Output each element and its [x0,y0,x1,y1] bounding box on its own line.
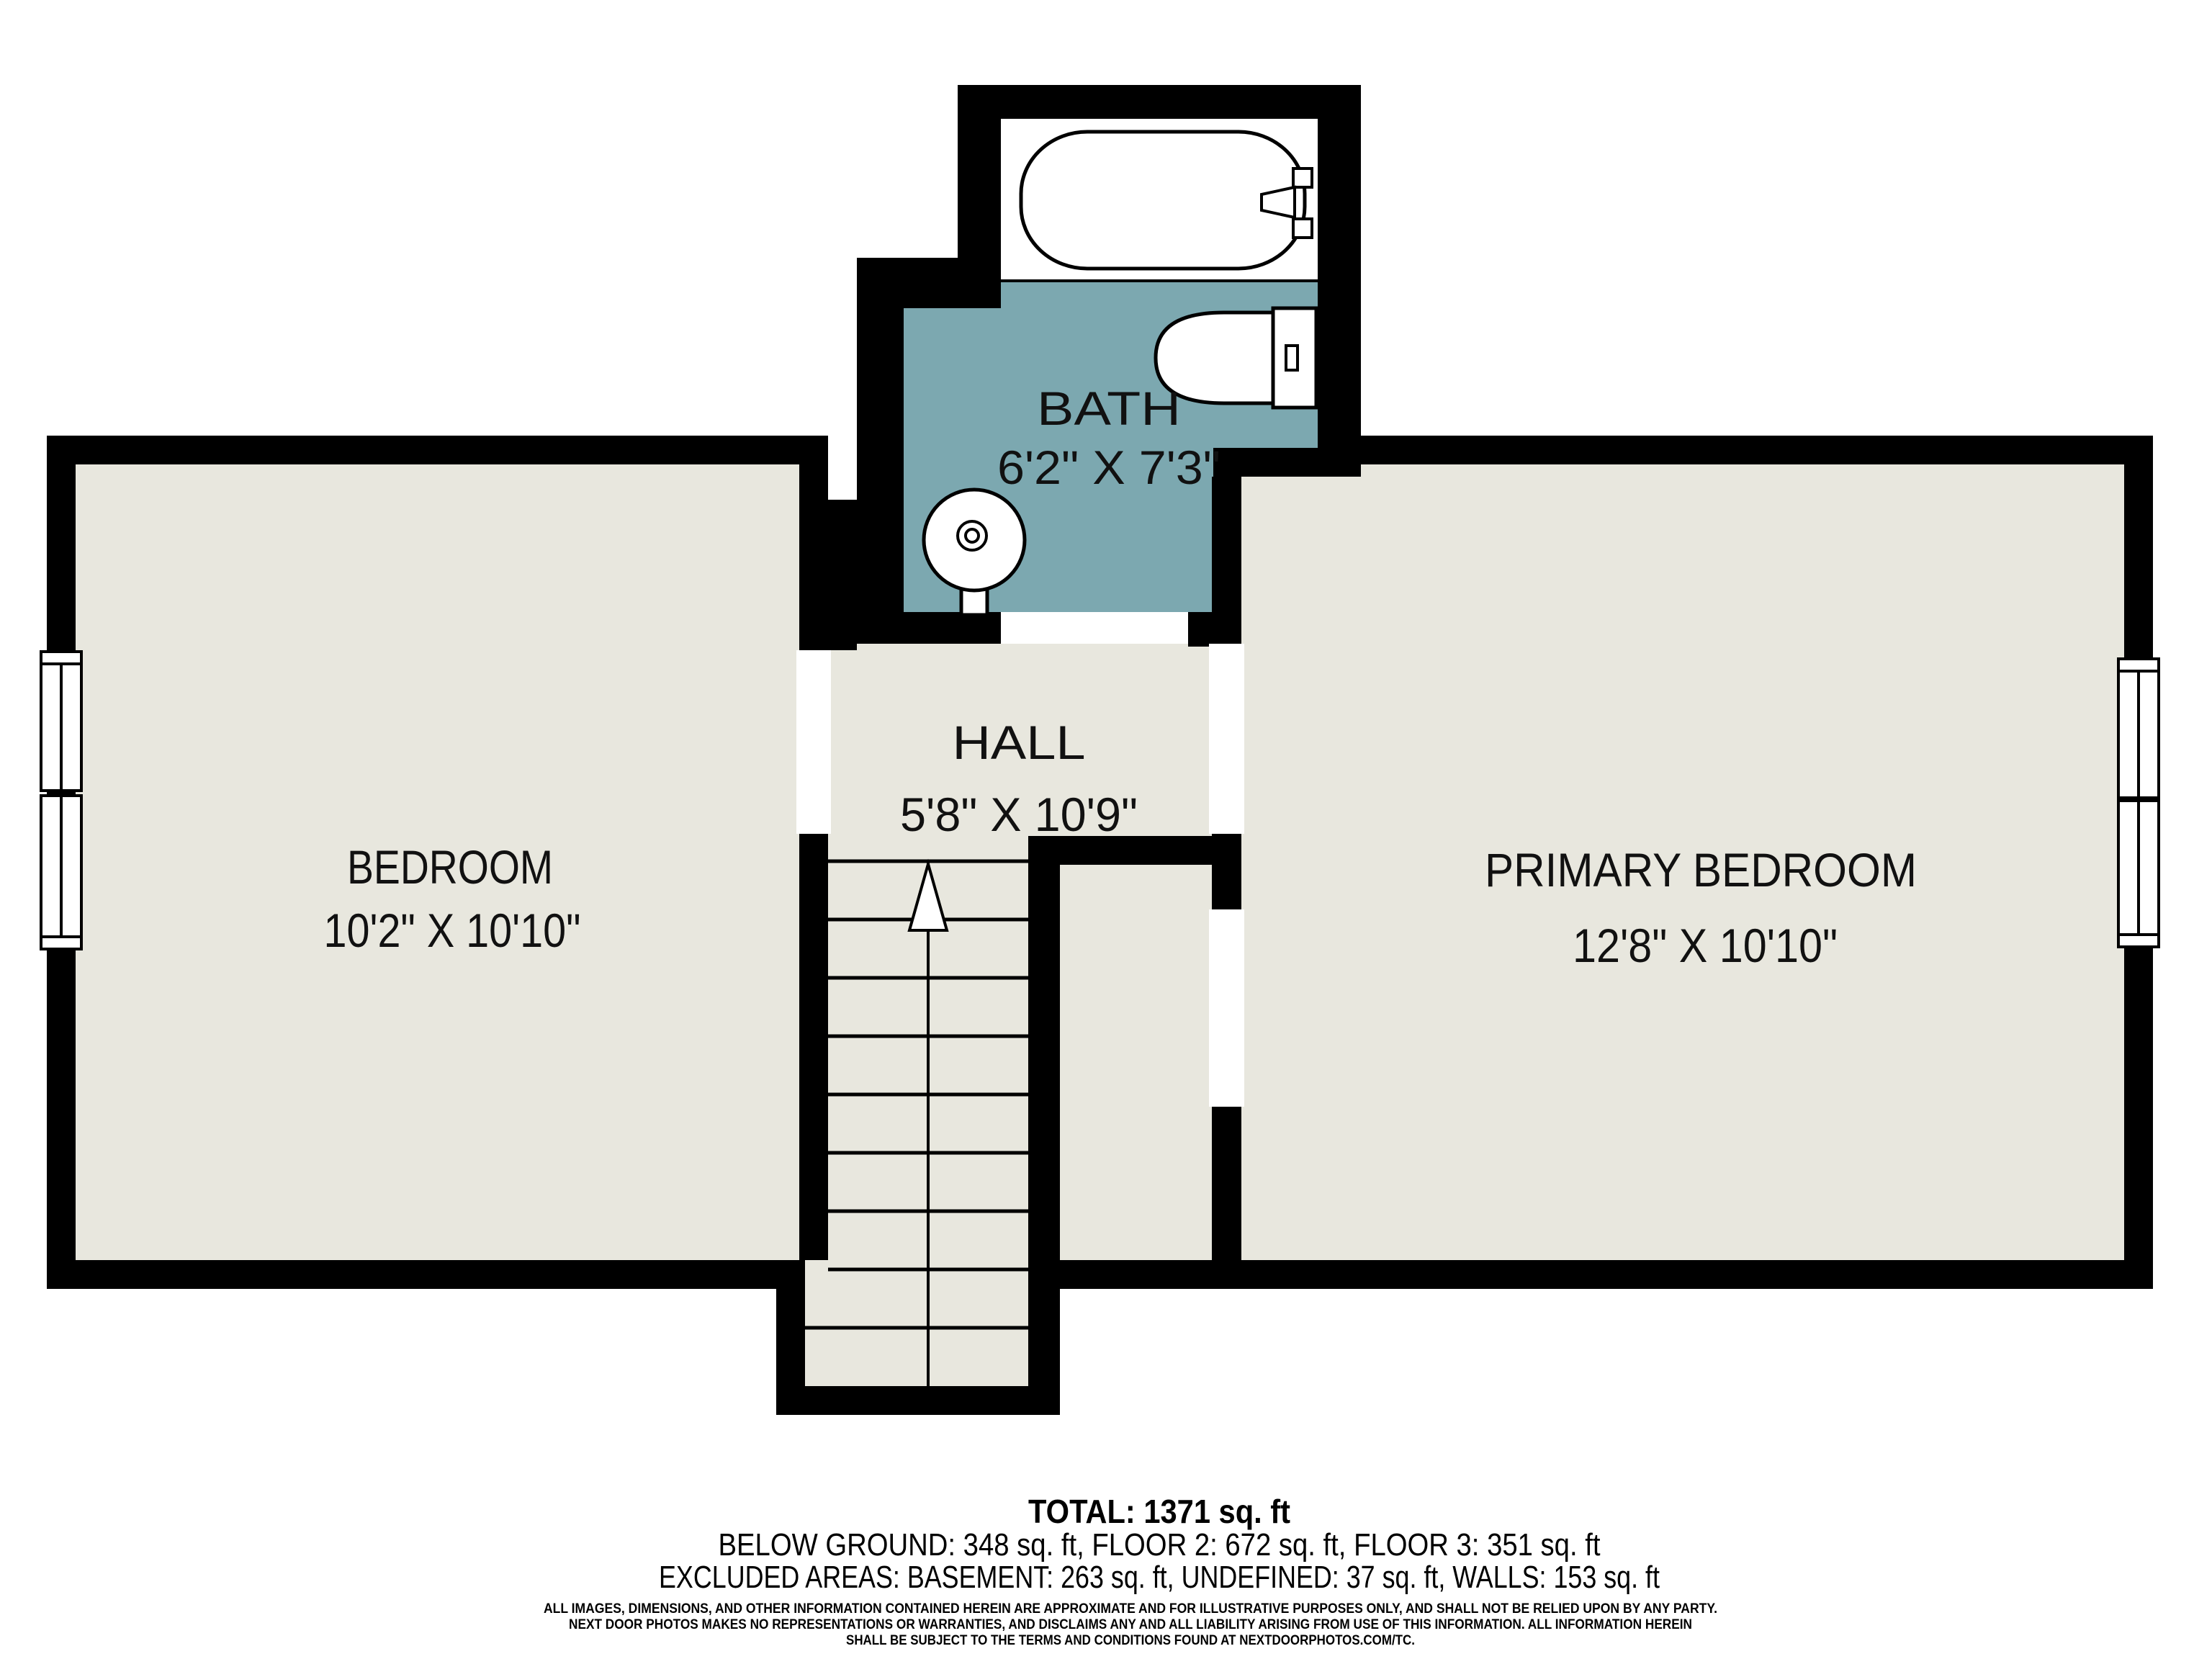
window-icon [2118,801,2159,947]
excluded-areas: EXCLUDED AREAS: BASEMENT: 263 sq. ft, UN… [659,1560,1660,1595]
floor-plan: BATH 6'2" X 7'3" HALL 5'8" X 10'9" BEDRO… [0,0,2212,1659]
bedroom-door-opening [796,650,831,834]
right-wall-windows [2118,659,2159,947]
disclaimer: ALL IMAGES, DIMENSIONS, AND OTHER INFORM… [544,1601,1717,1648]
disclaimer-line-1: ALL IMAGES, DIMENSIONS, AND OTHER INFORM… [544,1601,1717,1617]
closet-floor [1060,865,1212,1260]
primary-bedroom-dimensions: 12'8" X 10'10" [1573,919,1838,972]
bath-dimensions: 6'2" X 7'3" [997,441,1220,494]
disclaimer-line-3: SHALL BE SUBJECT TO THE TERMS AND CONDIT… [846,1632,1415,1648]
hall-dimensions: 5'8" X 10'9" [900,788,1138,841]
primary-bedroom-label: PRIMARY BEDROOM [1485,843,1917,896]
closet-opening [1209,909,1244,1107]
bedroom-label: BEDROOM [347,840,553,894]
window-icon [2118,659,2159,798]
area-summary: TOTAL: 1371 sq. ft BELOW GROUND: 348 sq.… [659,1493,1660,1595]
left-wall-windows [41,652,81,949]
window-icon [41,796,81,949]
total-area: TOTAL: 1371 sq. ft [1028,1493,1290,1530]
disclaimer-line-2: NEXT DOOR PHOTOS MAKES NO REPRESENTATION… [569,1617,1692,1632]
bath-door-opening [1001,612,1188,644]
bath-label: BATH [1037,382,1181,435]
window-icon [41,652,81,791]
tub-alcove [1001,119,1318,282]
bedroom-dimensions: 10'2" X 10'10" [324,904,581,957]
bathtub-icon [1021,132,1312,269]
hall-label: HALL [953,716,1086,769]
primary-bedroom-door-opening [1209,644,1244,834]
floor-areas: BELOW GROUND: 348 sq. ft, FLOOR 2: 672 s… [719,1527,1601,1563]
stairwell-floor-lower [805,1260,1028,1386]
